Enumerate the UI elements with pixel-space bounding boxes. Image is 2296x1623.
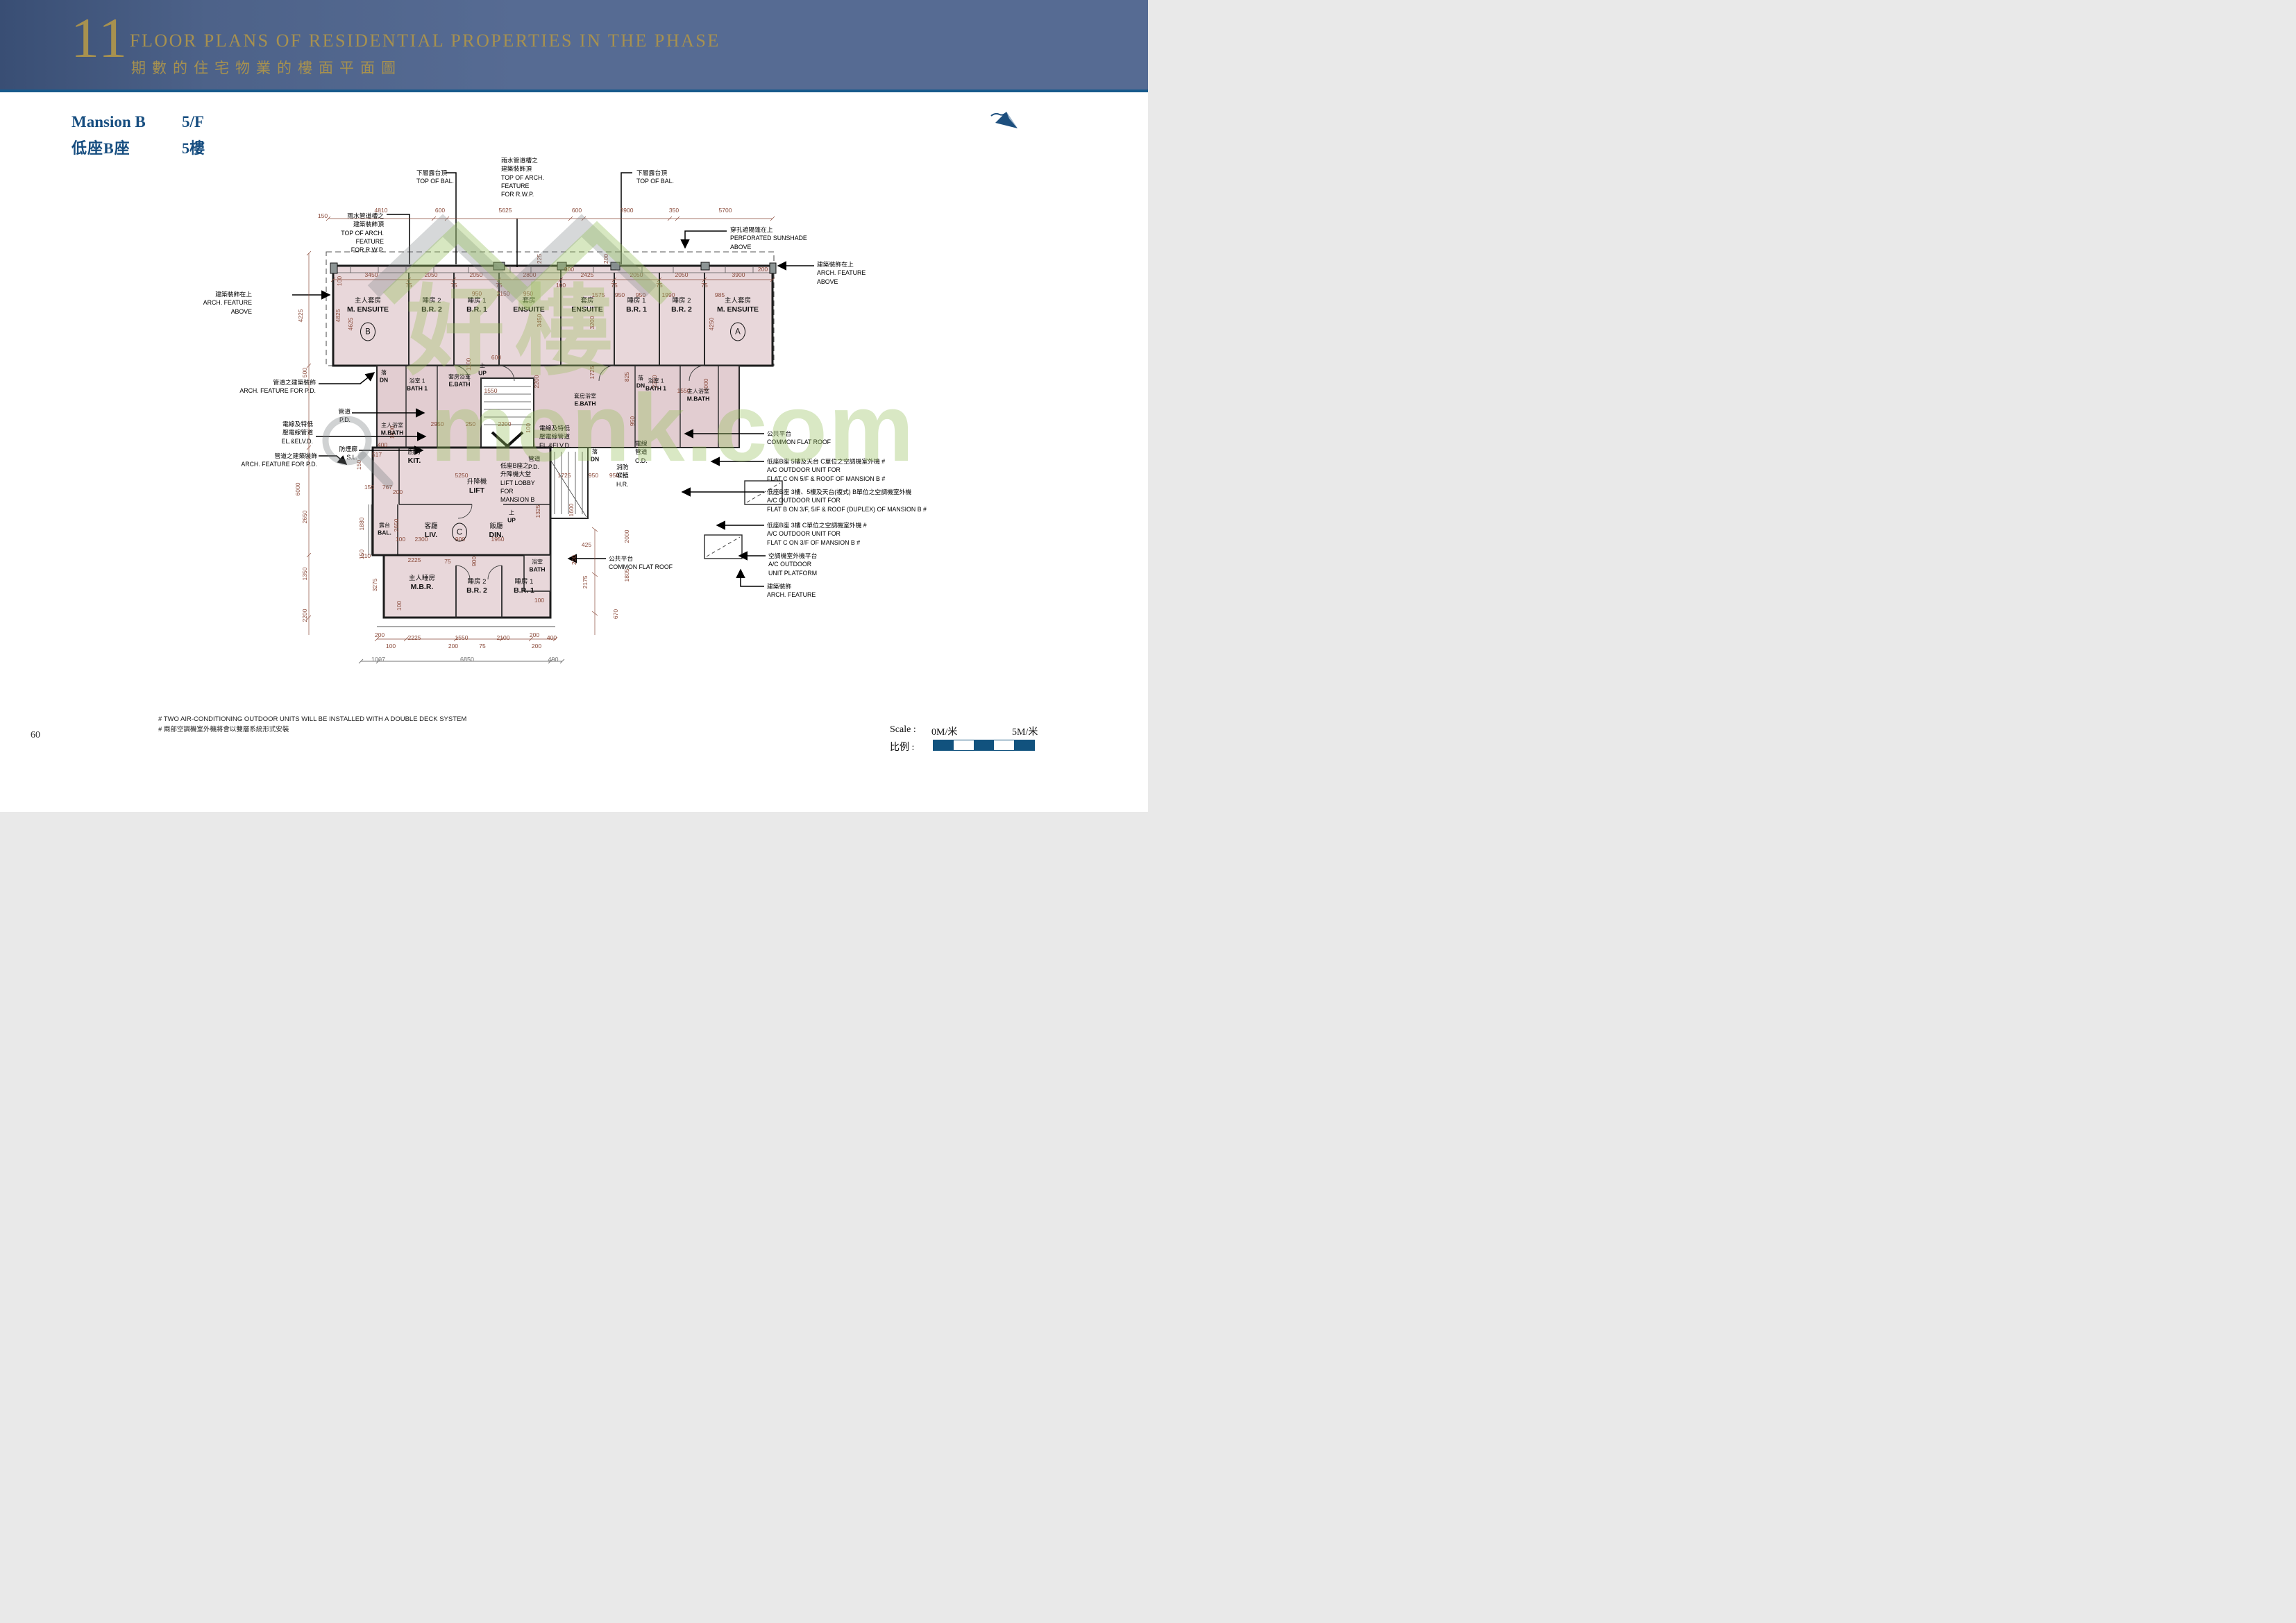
scale-five: 5M/米	[1012, 724, 1038, 738]
dim-label: 75	[656, 282, 662, 289]
dim-label: 950	[630, 416, 636, 426]
room-label: 套房浴室E.BATH	[574, 393, 596, 407]
dim-label: 100	[396, 536, 405, 543]
annotation: 建築裝飾ARCH. FEATURE	[767, 582, 816, 600]
dim-label: 600	[435, 207, 445, 214]
dim-label: 2225	[408, 635, 421, 641]
dim-label: 75	[479, 643, 485, 649]
dim-label: 100	[556, 282, 566, 289]
dim-label: 250	[466, 421, 475, 427]
header-rule	[0, 90, 1148, 92]
annotation: 管道P.D.	[338, 407, 351, 425]
dim-label: 900	[564, 266, 574, 273]
dim-label: 600	[491, 355, 501, 361]
unit-badge: A	[730, 323, 745, 341]
room-label: 睡房 1B.R. 1	[514, 578, 534, 596]
dim-label: 3900	[732, 272, 745, 278]
scale-bar-segments	[933, 740, 1035, 751]
dim-label: 2050	[425, 272, 438, 278]
dim-label: 1350	[302, 568, 308, 581]
floor-label-zh: 5樓	[182, 136, 205, 158]
room-label: 睡房 2B.R. 2	[466, 578, 487, 596]
dim-label: 100	[386, 643, 396, 649]
room-label: 上UP	[507, 509, 516, 524]
dim-label: 1600	[568, 504, 575, 517]
annotation: 下層露台頂TOP OF BAL.	[416, 169, 454, 186]
dim-label: 2050	[630, 272, 643, 278]
scale-segment	[1014, 740, 1034, 750]
dim-label: 2950	[431, 421, 444, 427]
annotation: 公共平台COMMON FLAT ROOF	[767, 430, 831, 447]
dim-label: 210	[361, 553, 371, 559]
unit-badge: C	[452, 523, 467, 542]
dim-label: 1325	[535, 505, 541, 518]
dim-label: 2200	[302, 609, 308, 622]
footnote: # TWO AIR-CONDITIONING OUTDOOR UNITS WIL…	[158, 715, 466, 735]
dim-label: 75	[611, 282, 617, 289]
annotation: 管道之建築裝飾ARCH. FEATURE FOR P.D.	[241, 452, 317, 469]
annotation: 公共平台COMMON FLAT ROOF	[609, 554, 673, 572]
dim-label: 825	[624, 372, 630, 382]
dim-label: 3450	[537, 314, 543, 328]
room-label: 浴室 1BATH 1	[645, 377, 666, 392]
dim-label: 490	[548, 657, 558, 663]
room-label: 露台BAL.	[378, 522, 391, 536]
floor-label: 5/F	[182, 113, 204, 131]
dim-label: 500	[302, 368, 308, 377]
footnote-line-zh: # 兩部空調機室外機將會以雙層系統形式安裝	[158, 725, 466, 736]
annotation: 建築裝飾在上ARCH. FEATUREABOVE	[817, 260, 866, 286]
dim-label: 2800	[523, 272, 537, 278]
dim-label: 100	[534, 597, 544, 604]
dim-label: 1725	[589, 366, 596, 380]
annotation: 低座B座 3樓、5樓及天台(複式) B單位之空調機室外機A/C OUTDOOR …	[767, 488, 927, 513]
dim-label: 75	[405, 282, 412, 289]
dim-label: 200	[603, 254, 609, 264]
room-label: 飯廳DIN.	[489, 522, 504, 541]
scale-label: Scale :	[890, 724, 916, 736]
dim-label: 5700	[719, 207, 732, 214]
dim-label: 1725	[558, 473, 571, 479]
room-label: 主人浴室M.BATH	[381, 422, 403, 436]
room-label: 主人浴室M.BATH	[687, 388, 709, 402]
dim-label: 4250	[709, 318, 715, 331]
room-label: 升降機LIFT	[467, 478, 487, 496]
scale-segment	[954, 740, 974, 750]
room-label: 主人套房M. ENSUITE	[717, 297, 759, 315]
dim-label: 1007	[371, 657, 385, 663]
dim-label: 1880	[359, 518, 365, 531]
dim-label: 5625	[499, 207, 512, 214]
dim-label: 225	[537, 254, 543, 264]
dim-label: 200	[448, 643, 458, 649]
dim-label: 400	[378, 442, 387, 448]
dim-label: 200	[530, 632, 539, 638]
dim-label: 900	[471, 556, 478, 566]
dim-label: 75	[444, 559, 450, 565]
dim-label: 100	[337, 276, 343, 286]
dim-label: 950	[472, 291, 482, 297]
floor-plan-drawing	[295, 149, 947, 687]
room-label: 廚房KIT.	[407, 448, 421, 466]
dim-label: 4625	[348, 318, 354, 331]
annotation: 電線及特低壓電線管道EL.&ELV.D.	[539, 424, 571, 450]
dim-label: 200	[571, 555, 577, 565]
dim-label: 5250	[455, 473, 469, 479]
dim-label: 100	[396, 601, 403, 611]
annotation: 建築裝飾在上ARCH. FEATUREABOVE	[203, 290, 252, 316]
brochure-page: 11 FLOOR PLANS OF RESIDENTIAL PROPERTIES…	[0, 0, 1148, 812]
north-arrow-icon	[988, 108, 1020, 134]
dim-label: 670	[613, 609, 619, 619]
dim-label: 3450	[365, 272, 378, 278]
dim-label: 150	[364, 484, 374, 491]
scale-segment	[994, 740, 1014, 750]
room-label: 客廳LIV.	[424, 522, 437, 541]
dim-label: 200	[375, 632, 385, 638]
dim-label: 1550	[455, 635, 469, 641]
annotation: 低座B座 3樓 C單位之空調機室外機 #A/C OUTDOOR UNIT FOR…	[767, 521, 867, 547]
annotation: 管道P.D.	[528, 454, 541, 472]
dim-label: 2050	[675, 272, 689, 278]
annotation: 雨水管道槽之建築裝飾頂TOP OF ARCH.FEATUREFOR R.W.P.	[341, 212, 384, 255]
dim-label: 425	[582, 542, 591, 548]
room-label: 落DN	[380, 369, 388, 384]
annotation: 雨水管道槽之建築裝飾頂TOP OF ARCH.FEATUREFOR R.W.P.	[501, 156, 544, 199]
annotation: 電線管道C.D.	[635, 439, 648, 465]
dim-label: 4825	[335, 309, 341, 323]
dim-label: 100	[525, 423, 532, 433]
room-label: 浴室 1BATH 1	[407, 377, 428, 392]
dim-label: 2200	[498, 421, 512, 427]
dim-label: 350	[669, 207, 679, 214]
dim-label: 200	[393, 489, 403, 495]
dim-label: 2425	[581, 272, 594, 278]
room-label: 睡房 2B.R. 2	[671, 297, 692, 315]
scale-label-zh: 比例 :	[890, 740, 914, 754]
chapter-number: 11	[71, 10, 128, 67]
dim-label: 2650	[394, 519, 400, 532]
room-label: 落DN	[636, 375, 645, 389]
dim-label: 2175	[582, 576, 589, 589]
dim-label: 200	[532, 643, 541, 649]
dim-label: 3275	[372, 579, 378, 592]
room-label: 落DN	[591, 448, 599, 463]
page-title-zh: 期數的住宅物業的樓面平面圖	[131, 57, 402, 78]
dim-label: 6850	[460, 657, 474, 663]
dim-label: 2650	[302, 511, 308, 524]
annotation: 管道之建築裝飾ARCH. FEATURE FOR P.D.	[239, 378, 316, 396]
dim-label: 517	[372, 452, 382, 458]
dim-label: 3200	[589, 316, 596, 330]
building-name-zh: 低座B座	[71, 136, 130, 158]
annotation: 空調機室外機平台A/C OUTDOORUNIT PLATFORM	[768, 552, 817, 577]
dim-label: 6000	[295, 483, 301, 496]
dim-label: 1100	[466, 358, 472, 371]
annotation: 低座B座 5樓及天台 C單位之空調機室外機 #A/C OUTDOOR UNIT …	[767, 457, 885, 483]
annotation: 下層露台頂TOP OF BAL.	[636, 169, 674, 186]
scale-segment	[934, 740, 954, 750]
dim-label: 2000	[624, 530, 630, 543]
dim-label: 1550	[484, 388, 498, 394]
room-label: 套房浴室E.BATH	[448, 373, 471, 388]
scale-segment	[974, 740, 994, 750]
page-title: FLOOR PLANS OF RESIDENTIAL PROPERTIES IN…	[130, 31, 720, 51]
room-label: 主人睡房M.B.R.	[409, 575, 435, 593]
dim-label: 600	[572, 207, 582, 214]
page-number: 60	[31, 730, 40, 741]
room-label: 主人套房M. ENSUITE	[347, 297, 389, 315]
room-label: 套房ENSUITE	[571, 297, 603, 315]
footnote-line-en: # TWO AIR-CONDITIONING OUTDOOR UNITS WIL…	[158, 715, 466, 725]
dim-label: 950	[615, 292, 625, 298]
unit-badge: B	[360, 323, 375, 341]
dim-label: 767	[382, 484, 392, 491]
room-label: 睡房 1B.R. 1	[626, 297, 647, 315]
dim-label: 950	[523, 291, 533, 297]
dim-label: 2200	[534, 375, 540, 389]
annotation: 電線及特低壓電線管道EL.&ELV.D.	[282, 420, 313, 445]
building-name: Mansion B	[71, 113, 146, 131]
dim-label: 2225	[408, 557, 421, 563]
dim-label: 2150	[497, 291, 510, 297]
dim-label: 4225	[298, 309, 304, 323]
room-label: 浴室BATH	[530, 559, 546, 573]
room-label: 睡房 1B.R. 1	[466, 297, 487, 315]
dim-label: 200	[758, 266, 768, 273]
dim-label: 150	[318, 213, 328, 219]
annotation: 防煙廊S.L.	[339, 445, 357, 462]
dim-label: 75	[701, 282, 707, 289]
dim-label: 950	[589, 473, 598, 479]
annotation: 消防喉轆H.R.	[616, 463, 629, 488]
annotation: 穿孔遮陽篷在上PERFORATED SUNSHADEABOVE	[730, 226, 807, 251]
dim-label: 2050	[470, 272, 483, 278]
scale-bar: Scale : 0M/米 5M/米 比例 :	[890, 724, 1070, 738]
dim-label: 400	[547, 635, 557, 641]
dim-label: 75	[496, 282, 502, 289]
room-label: 睡房 2B.R. 2	[421, 297, 442, 315]
dim-label: 2100	[497, 635, 510, 641]
room-label: 上UP	[478, 362, 487, 377]
dim-label: 3900	[621, 207, 634, 214]
dim-label: 75	[450, 282, 457, 289]
room-label: 套房ENSUITE	[513, 297, 545, 315]
scale-zero: 0M/米	[931, 724, 957, 738]
floor-plan: 4810600562560039003505700150345020502050…	[295, 149, 947, 687]
